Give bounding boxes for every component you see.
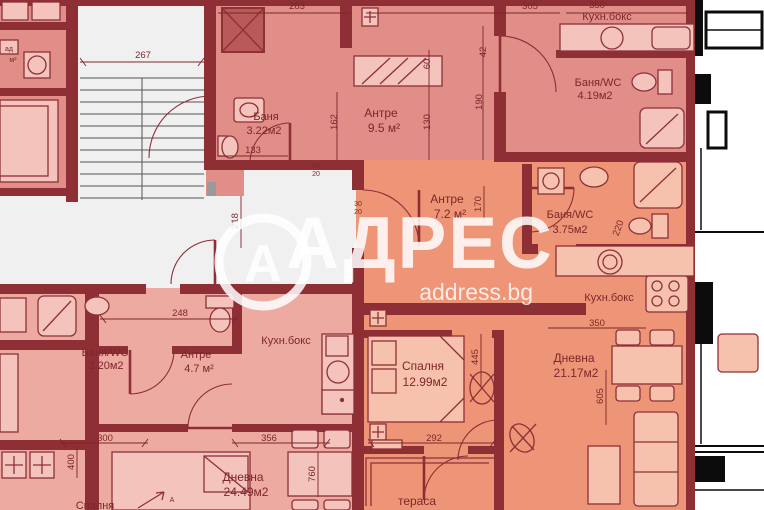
room-area: 4.19м2 — [577, 90, 612, 102]
edge-text-fragment: м² — [9, 57, 17, 64]
dim: 283 — [289, 1, 305, 12]
floor-plan-image: Антре 9.5 м² Баня 3.22м2 Кухн.бокс Баня/… — [0, 0, 764, 510]
radiator-icon — [370, 310, 386, 326]
radiator-icon — [2, 452, 26, 478]
room-label: Баня/WC — [82, 347, 129, 359]
room-label: Антре — [181, 349, 212, 361]
dim: 760 — [307, 466, 318, 482]
dim: 130 — [422, 114, 433, 130]
dim: 60 — [422, 59, 433, 70]
room-area: 21.17м2 — [554, 366, 599, 380]
room-label: Баня — [253, 111, 278, 123]
basin-icon — [652, 27, 690, 49]
dim: 267 — [135, 50, 151, 61]
elevator-shaft-icon — [222, 8, 264, 52]
washing-machine-icon — [24, 52, 50, 78]
toilet-tank-icon — [652, 214, 668, 238]
dim: 42 — [478, 47, 489, 58]
room-label: тераса — [398, 494, 436, 508]
brand-wordmark: АДРЕС — [286, 203, 554, 284]
sink-icon — [85, 297, 109, 315]
dim: 162 — [329, 114, 340, 130]
dim: 300 — [97, 433, 113, 444]
room-label: Спалня — [76, 500, 115, 510]
dim: 305 — [522, 1, 538, 12]
washing-machine-icon — [538, 168, 564, 194]
toilet-tank-icon — [658, 70, 672, 94]
room-label: Антре — [364, 106, 398, 120]
kitchen-column-icon — [322, 334, 354, 414]
dim: 356 — [261, 433, 277, 444]
wardrobe-icon — [0, 354, 18, 432]
entrance-marker: А — [170, 497, 175, 504]
room-label: Кухн.бокс — [584, 292, 634, 304]
toilet-icon — [0, 298, 26, 332]
sofa-icon — [634, 412, 678, 506]
dim: 350 — [589, 318, 605, 329]
dim: 20 — [312, 171, 320, 178]
kitchen-sink-icon — [601, 27, 623, 49]
dim: 350 — [589, 0, 605, 11]
room-area: 4.7 м² — [184, 363, 214, 375]
room-area: 24.49м2 — [224, 485, 269, 499]
toilet-icon — [632, 73, 656, 91]
dim: 445 — [470, 349, 481, 365]
room-area: 3.20м2 — [88, 360, 123, 372]
room-label: Дневна — [222, 470, 263, 484]
brand-logo-letter: А — [244, 235, 282, 293]
tv-stand-icon — [588, 446, 620, 504]
toilet-icon — [222, 136, 238, 158]
room-label: Спалня — [402, 359, 444, 373]
room-area: 9.5 м² — [368, 121, 400, 135]
room-label: Кухн.бокс — [582, 11, 632, 23]
toilet-tank-icon — [206, 296, 234, 308]
stove-icon — [646, 276, 688, 312]
shower-icon — [38, 296, 76, 336]
dim: 40 — [312, 163, 320, 170]
shower-icon — [640, 108, 684, 148]
sink-icon — [580, 167, 608, 187]
room-area: 12.99м2 — [403, 375, 448, 389]
dim: 605 — [595, 388, 606, 404]
room-area: 3.22м2 — [246, 125, 281, 137]
dim: 248 — [172, 308, 188, 319]
terrace-planter — [372, 440, 402, 449]
radiator-icon — [370, 424, 386, 440]
armchair-icon — [718, 334, 758, 372]
radiator-icon — [362, 8, 378, 26]
toilet-icon — [210, 308, 230, 332]
kitchen-counter-icon — [556, 246, 694, 276]
shower-icon — [634, 162, 682, 208]
room-area: 3.75м2 — [552, 224, 587, 236]
dim: 133 — [245, 145, 261, 156]
brand-domain: address.bg — [419, 279, 533, 305]
room-label: Кухн.бокс — [261, 335, 311, 347]
room-label: Дневна — [553, 351, 594, 365]
dim: 400 — [66, 454, 77, 470]
edge-text-fragment: ад — [5, 46, 13, 53]
radiator-icon — [30, 452, 54, 478]
dim: 292 — [426, 433, 442, 444]
room-label: Баня/WC — [575, 77, 622, 89]
kitchen-sink-icon — [598, 250, 622, 274]
dim: 190 — [474, 94, 485, 110]
bed-icon — [0, 100, 58, 182]
toilet-icon — [629, 218, 651, 234]
